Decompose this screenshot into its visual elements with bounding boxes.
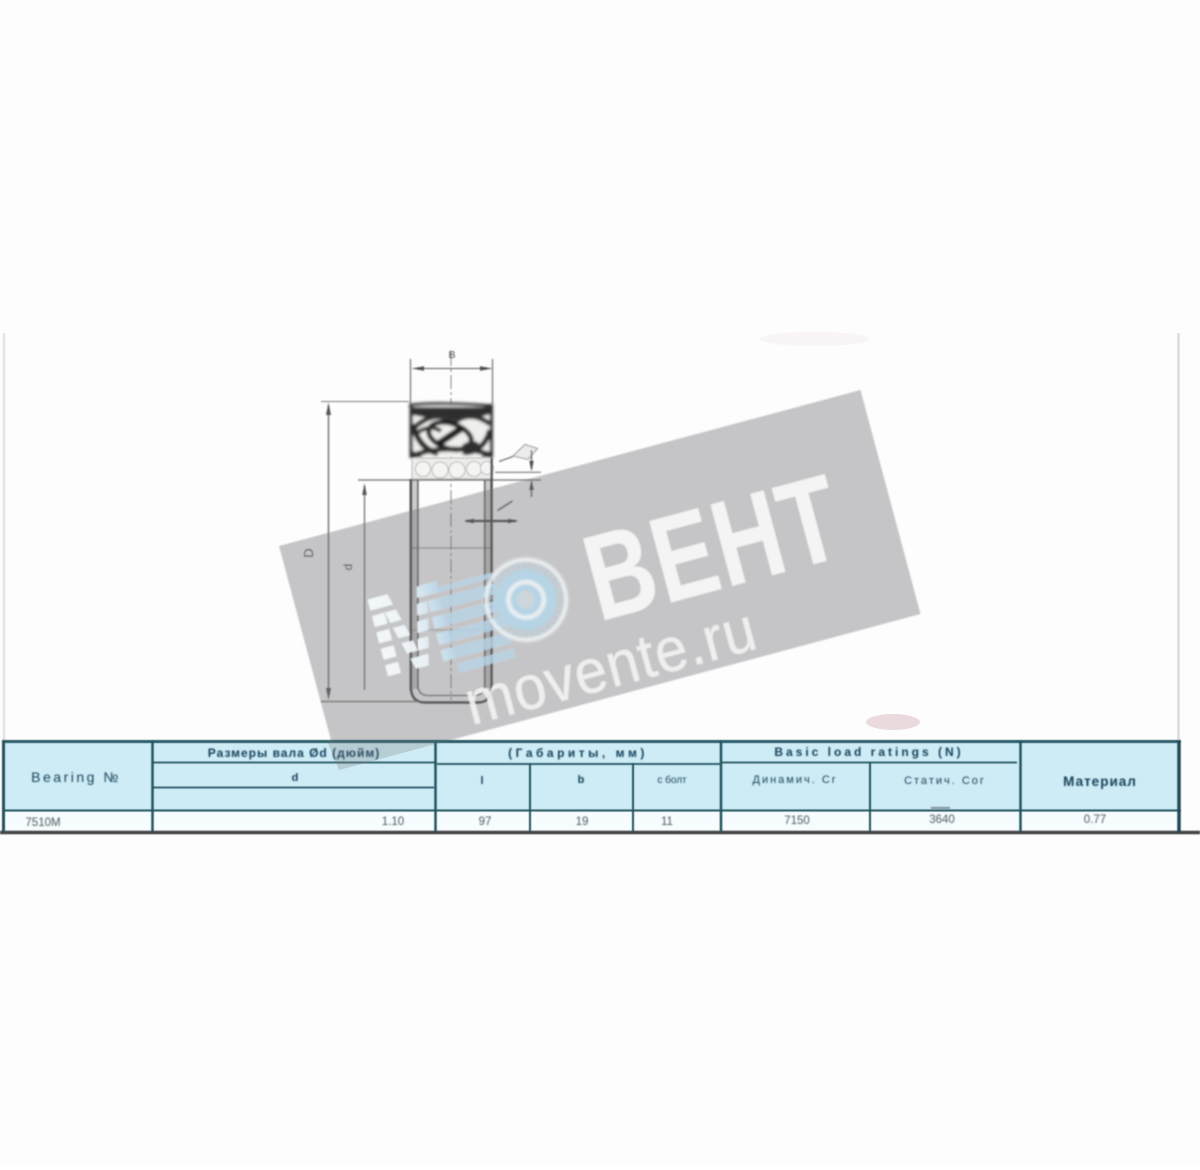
svg-text:l: l: [480, 775, 483, 787]
svg-text:3640: 3640: [929, 814, 955, 826]
svg-text:B: B: [448, 349, 455, 361]
svg-text:Статич. Сог: Статич. Сог: [904, 775, 986, 787]
svg-text:97: 97: [479, 816, 492, 828]
svg-text:Материал: Материал: [1063, 774, 1137, 789]
svg-text:11: 11: [661, 816, 673, 828]
svg-text:Bearing №: Bearing №: [31, 769, 121, 785]
svg-text:b: b: [578, 774, 585, 786]
svg-text:1.10: 1.10: [382, 816, 404, 828]
svg-text:Basic load ratings (N): Basic load ratings (N): [774, 745, 963, 759]
svg-text:(Габариты, мм): (Габариты, мм): [508, 746, 648, 760]
svg-text:0.77: 0.77: [1084, 814, 1106, 826]
svg-text:7150: 7150: [784, 815, 810, 827]
svg-text:с болт: с болт: [657, 774, 687, 786]
svg-text:Динамич. Сr: Динамич. Сr: [753, 774, 838, 786]
svg-text:7510М: 7510М: [25, 817, 60, 829]
svg-text:19: 19: [576, 816, 589, 828]
svg-text:d: d: [292, 772, 299, 784]
